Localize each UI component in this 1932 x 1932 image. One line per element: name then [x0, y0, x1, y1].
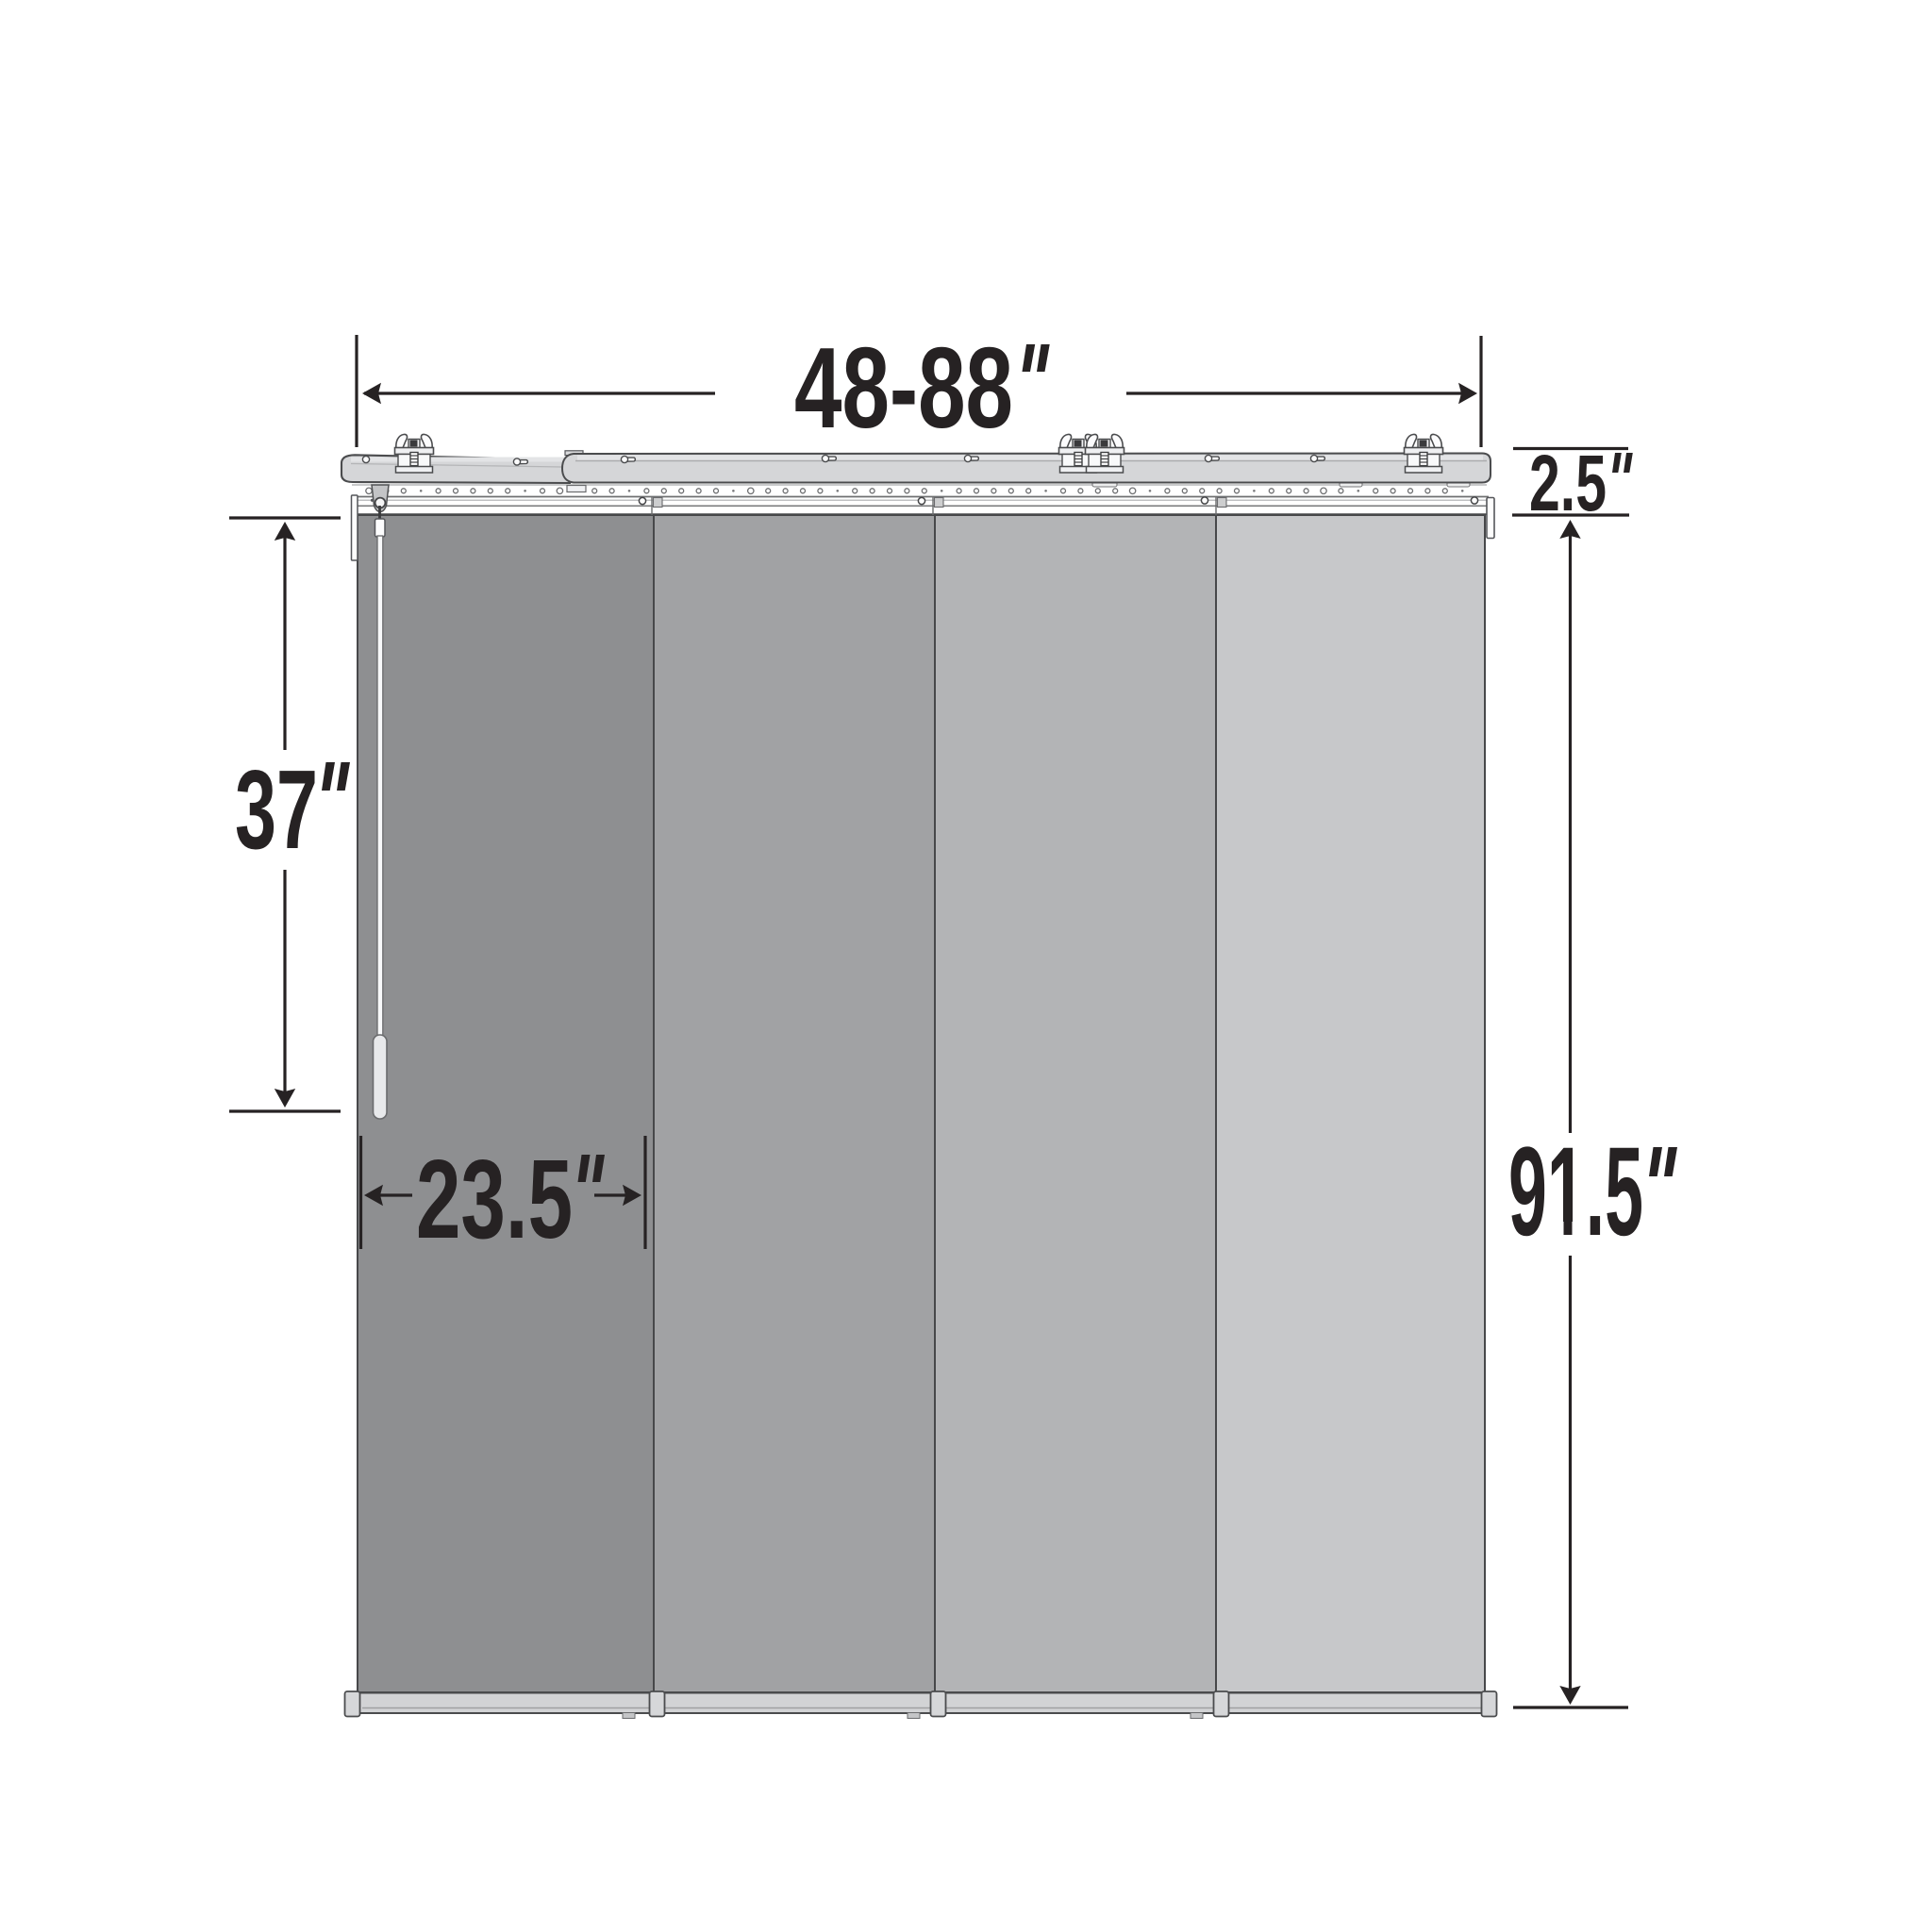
- svg-text:48-88: 48-88: [794, 324, 1013, 452]
- svg-text:37: 37: [235, 747, 318, 873]
- svg-text:91.5: 91.5: [1508, 1122, 1643, 1262]
- svg-text:23.5: 23.5: [416, 1137, 573, 1262]
- svg-text:2.5: 2.5: [1529, 439, 1607, 527]
